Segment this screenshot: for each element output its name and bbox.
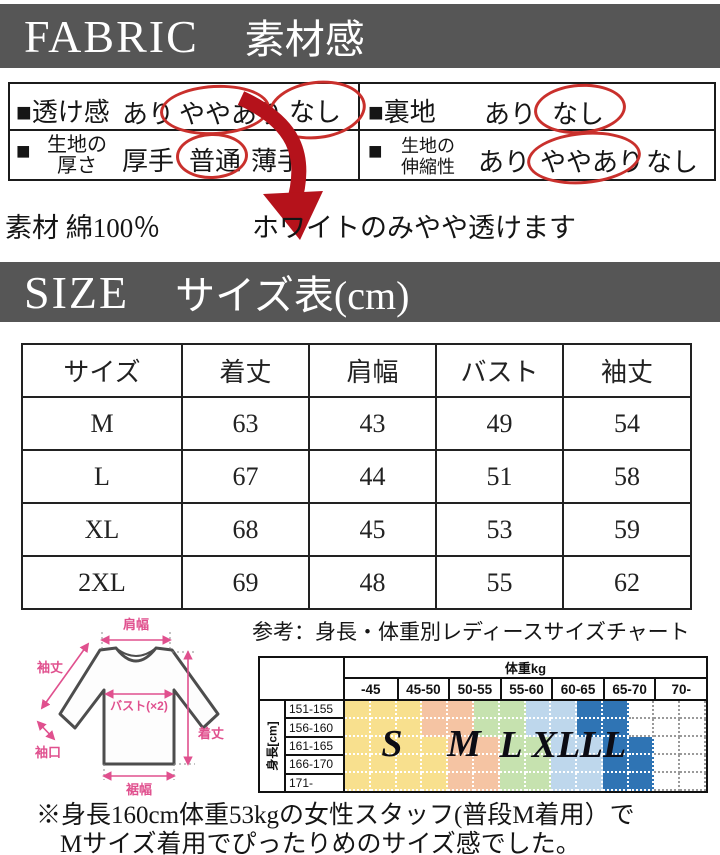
sleeve-dim-label: 袖丈 (37, 660, 63, 675)
size-table-header-row: サイズ 着丈 肩幅 バスト 袖丈 (22, 344, 691, 397)
cell: 68 (182, 503, 309, 556)
cell: L (22, 450, 182, 503)
ref-chart-cell (397, 701, 423, 719)
col-header-sleeve: 袖丈 (563, 344, 691, 397)
lining-opt-ari: あり (484, 94, 536, 131)
ref-chart-cell (397, 773, 423, 791)
ref-chart-cell (371, 701, 397, 719)
height-row: 161-165 (286, 738, 343, 756)
cell: 67 (182, 450, 309, 503)
ref-chart-cell (603, 773, 629, 791)
ref-chart-cell (654, 773, 680, 791)
thickness-label-line1: 生地の (40, 135, 114, 156)
cell: 63 (182, 397, 309, 450)
weight-col: 55-60 (500, 679, 552, 699)
height-row: 166-170 (286, 756, 343, 774)
ref-chart-cell (422, 773, 448, 791)
ref-chart-cell (577, 701, 603, 719)
thickness-label: 生地の 厚さ (40, 135, 114, 177)
ref-chart-corner-cell (260, 658, 345, 701)
ref-chart-cell (500, 773, 526, 791)
weight-col: 65-70 (603, 679, 655, 699)
height-row-labels: 151-155 156-160 161-165 166-170 171- (286, 701, 345, 791)
col-header-shoulder: 肩幅 (309, 344, 436, 397)
thickness-label-line2: 厚さ (40, 156, 114, 177)
stretch-opt-ari: あり (478, 142, 530, 179)
height-axis-label-cell: 身長[cm] (260, 701, 286, 791)
cell: M (22, 397, 182, 450)
ref-chart-cell (654, 719, 680, 737)
fabric-title-ja: 素材感 (245, 7, 365, 65)
fabric-section-header: FABRIC 素材感 (0, 4, 720, 68)
ref-chart-cell (371, 773, 397, 791)
ref-chart-cell (422, 719, 448, 737)
stretch-label-line2: 伸縮性 (390, 157, 466, 178)
stretch-label-line1: 生地の (390, 136, 466, 157)
col-header-size: サイズ (22, 344, 182, 397)
weight-col: -45 (345, 679, 397, 699)
cell: 69 (182, 556, 309, 609)
ref-chart-cell (680, 755, 706, 773)
weight-column-labels: -45 45-50 50-55 55-60 60-65 65-70 70- (345, 679, 706, 701)
cell: 53 (436, 503, 563, 556)
ref-chart-cell (448, 701, 474, 719)
col-header-bust: バスト (436, 344, 563, 397)
ref-chart-cell (680, 773, 706, 791)
ref-chart-cell (345, 737, 371, 755)
ref-chart-cell (629, 755, 655, 773)
ref-chart-cell (526, 773, 552, 791)
ref-chart-cell (474, 701, 500, 719)
cell: 2XL (22, 556, 182, 609)
cell: 45 (309, 503, 436, 556)
size-table: サイズ 着丈 肩幅 バスト 袖丈 M 63 43 49 54 L 67 44 5… (21, 343, 692, 610)
ref-chart-cell (629, 719, 655, 737)
weight-col: 60-65 (551, 679, 603, 699)
cell: 55 (436, 556, 563, 609)
reference-chart-caption: 参考：身長・体重別レディースサイズチャート (252, 616, 690, 646)
size-letter-m: M (447, 725, 481, 763)
ref-chart-cell (577, 773, 603, 791)
cell: 62 (563, 556, 691, 609)
sheer-label: ■透け感 (16, 92, 110, 129)
sheer-note: ホワイトのみやや透けます (252, 206, 576, 245)
ref-chart-cell (551, 701, 577, 719)
staff-note-line2: Mサイズ着用でぴったりめのサイズ感でした。 (60, 824, 581, 855)
weight-col: 70- (654, 679, 706, 699)
cell: 51 (436, 450, 563, 503)
ref-chart-cell (654, 737, 680, 755)
ref-chart-cell (603, 701, 629, 719)
ref-chart-cell (448, 773, 474, 791)
col-header-length: 着丈 (182, 344, 309, 397)
product-info-image: FABRIC 素材感 ■透け感 あり ややあり なし ■ 生地の 厚さ 厚手 普… (0, 0, 720, 855)
height-row: 156-160 (286, 719, 343, 737)
size-row-l: L 67 44 51 58 (22, 450, 691, 503)
height-row: 151-155 (286, 701, 343, 719)
ref-chart-cell (680, 701, 706, 719)
ref-chart-cell (654, 701, 680, 719)
cell: 43 (309, 397, 436, 450)
stretch-bullet: ■ (368, 139, 383, 166)
table-divider (360, 129, 714, 131)
weight-col: 45-50 (397, 679, 449, 699)
stretch-label: 生地の 伸縮性 (390, 136, 466, 178)
cell: 44 (309, 450, 436, 503)
ref-chart-cell (680, 737, 706, 755)
size-row-xl: XL 68 45 53 59 (22, 503, 691, 556)
size-title-ja: サイズ表(cm) (175, 263, 409, 321)
cell: XL (22, 503, 182, 556)
size-letter-l: L (499, 726, 522, 764)
shoulder-dim-label: 肩幅 (123, 617, 149, 632)
material-note: 素材 綿100％ (5, 206, 160, 245)
size-row-m: M 63 43 49 54 (22, 397, 691, 450)
bust-dim-label: バスト(×2) (110, 699, 168, 713)
reference-size-chart: 体重kg -45 45-50 50-55 55-60 60-65 65-70 7… (258, 656, 708, 793)
ref-chart-cell (422, 701, 448, 719)
cuff-dim-line (38, 722, 54, 739)
ref-chart-cell (526, 701, 552, 719)
ref-chart-cell (629, 773, 655, 791)
ref-chart-cell (345, 755, 371, 773)
size-row-2xl: 2XL 69 48 55 62 (22, 556, 691, 609)
cell: 59 (563, 503, 691, 556)
ref-chart-cell (500, 701, 526, 719)
garment-measurement-diagram: 肩幅 袖丈 バスト(×2) 袖口 着丈 裾幅 (12, 612, 247, 804)
size-letter-s: S (381, 725, 402, 763)
ref-chart-cell (629, 701, 655, 719)
ref-chart-cell (345, 773, 371, 791)
height-row: 171- (286, 775, 343, 791)
height-axis-label: 身長[cm] (264, 721, 281, 770)
size-letter-ll: LL (580, 726, 626, 764)
cuff-dim-label: 袖口 (35, 745, 61, 760)
size-title-en: SIZE (24, 266, 129, 319)
red-arrow-shaft (241, 98, 299, 206)
lining-label: ■裏地 (368, 92, 436, 129)
size-letter-xl: XL (532, 726, 581, 764)
cell: 54 (563, 397, 691, 450)
ref-chart-cell (345, 701, 371, 719)
weight-col: 50-55 (448, 679, 500, 699)
ref-chart-cell (629, 737, 655, 755)
ref-chart-cell (345, 719, 371, 737)
ref-chart-cell (551, 773, 577, 791)
fabric-title-en: FABRIC (24, 10, 199, 63)
ref-chart-cell (680, 719, 706, 737)
ref-chart-cell (422, 755, 448, 773)
size-section-header: SIZE サイズ表(cm) (0, 262, 720, 322)
stretch-opt-nashi: なし (646, 142, 698, 179)
ref-chart-cell (422, 737, 448, 755)
weight-header: 体重kg (345, 658, 706, 679)
thickness-bullet: ■ (16, 139, 31, 166)
cell: 49 (436, 397, 563, 450)
thickness-opt-atsude: 厚手 (122, 141, 174, 178)
cell: 48 (309, 556, 436, 609)
ref-chart-cell (654, 755, 680, 773)
length-dim-label: 着丈 (197, 726, 224, 741)
cell: 58 (563, 450, 691, 503)
ref-chart-cell (474, 773, 500, 791)
